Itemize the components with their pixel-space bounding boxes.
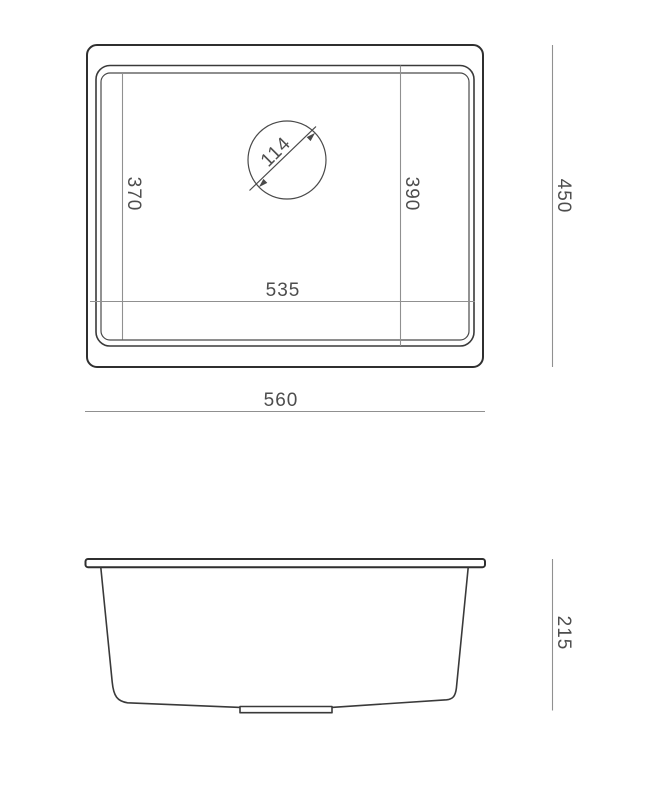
drain-boss [240, 707, 332, 713]
sink-outer-edge [87, 45, 483, 367]
bowl-profile-left [101, 567, 241, 707]
drawing-sheet: 114 370 390 535 560 450 [0, 0, 646, 800]
dim-label-drain-diameter: 114 [257, 133, 295, 171]
diameter-arrow-lower [257, 179, 267, 189]
diameter-arrow-upper [307, 131, 317, 141]
dim-label-450: 450 [553, 179, 574, 214]
rim-profile [86, 559, 486, 567]
bowl-profile-right [332, 567, 469, 707]
dim-label-535: 535 [266, 280, 301, 301]
dim-label-370: 370 [123, 177, 144, 212]
dim-label-560: 560 [264, 390, 299, 411]
side-view: 215 [86, 559, 575, 713]
dim-label-215: 215 [553, 616, 574, 651]
dim-label-390: 390 [401, 177, 422, 212]
sink-technical-drawing: 114 370 390 535 560 450 [0, 0, 646, 800]
plan-view: 114 370 390 535 560 450 [85, 45, 574, 412]
